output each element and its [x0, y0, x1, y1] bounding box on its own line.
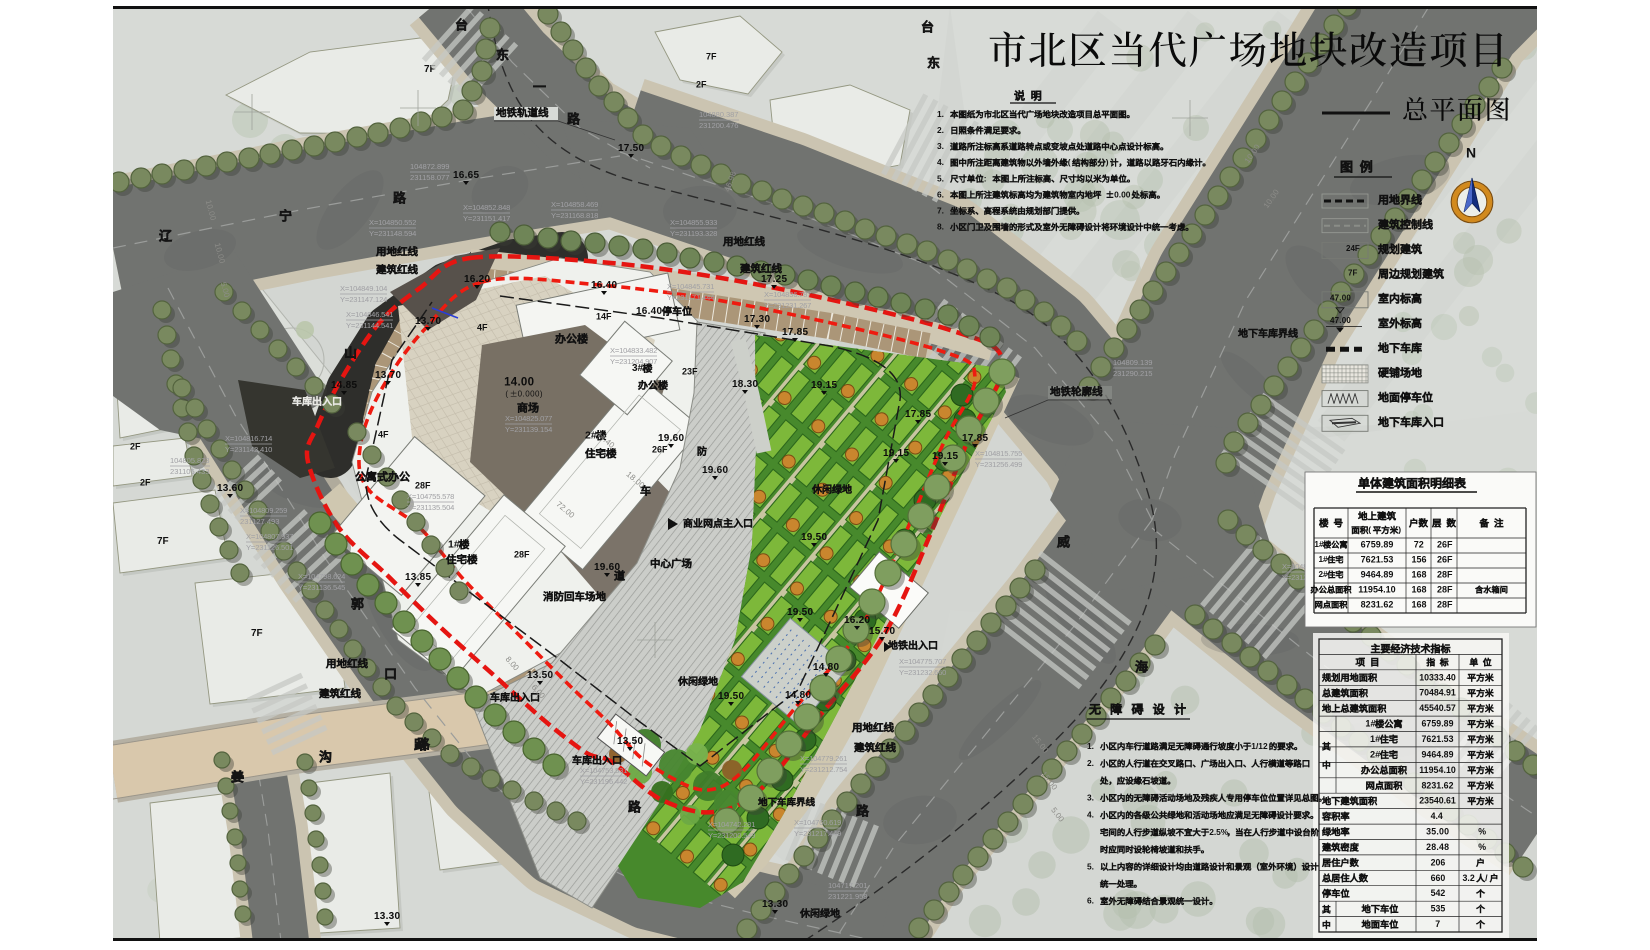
svg-text:X=104858.469: X=104858.469 [551, 200, 598, 209]
svg-text:2#: 2# [1319, 570, 1329, 579]
svg-text:14.85: 14.85 [331, 380, 357, 391]
svg-text:): ) [1398, 525, 1401, 535]
svg-text:3.: 3. [937, 141, 944, 151]
svg-text:2.: 2. [937, 125, 944, 135]
svg-text::: : [984, 173, 987, 183]
svg-text:4F: 4F [378, 429, 389, 439]
svg-text:16.65: 16.65 [453, 170, 479, 181]
svg-text:5.: 5. [937, 173, 944, 183]
svg-text:231158.077: 231158.077 [410, 173, 450, 182]
svg-text:Y=231196.442: Y=231196.442 [580, 777, 627, 786]
svg-text:2F: 2F [140, 477, 151, 487]
svg-text:14.80: 14.80 [813, 662, 839, 673]
svg-text:Y=231171.444: Y=231171.444 [667, 293, 714, 302]
svg-text:19.50: 19.50 [787, 607, 813, 618]
svg-text:Y=231139.154: Y=231139.154 [505, 425, 552, 434]
svg-text:2.: 2. [1087, 758, 1094, 768]
svg-text:9464.89: 9464.89 [1361, 569, 1394, 579]
svg-text:19.50: 19.50 [801, 532, 827, 543]
svg-text:23540.61: 23540.61 [1419, 796, 1456, 806]
svg-text:17.25: 17.25 [761, 274, 787, 285]
svg-text:1/12: 1/12 [1251, 741, 1268, 751]
svg-text:X=104760.619: X=104760.619 [794, 818, 841, 827]
svg-text:2F: 2F [696, 79, 707, 89]
svg-text:X=104815.755: X=104815.755 [975, 449, 1022, 458]
svg-text:7: 7 [1435, 919, 1440, 929]
svg-text:19.15: 19.15 [811, 380, 837, 391]
svg-text:28F: 28F [1437, 569, 1453, 579]
svg-text:Y=231200.549: Y=231200.549 [708, 831, 755, 840]
svg-text:Y=231204.907: Y=231204.907 [610, 357, 657, 366]
svg-text:24F: 24F [1346, 244, 1360, 253]
svg-text:16.20: 16.20 [844, 615, 870, 626]
svg-text:104717.201: 104717.201 [828, 881, 868, 890]
svg-text:35.00: 35.00 [1426, 827, 1449, 837]
svg-text:156: 156 [1412, 554, 1427, 564]
svg-text:X=104836.787: X=104836.787 [764, 290, 811, 299]
svg-text:104805.823: 104805.823 [170, 456, 210, 465]
svg-text:28.48: 28.48 [1426, 842, 1449, 852]
svg-text:X=104755.578: X=104755.578 [407, 492, 454, 501]
svg-text:7F: 7F [251, 628, 263, 639]
svg-text:13.70: 13.70 [415, 316, 441, 327]
svg-text:19.60: 19.60 [594, 562, 620, 573]
svg-text:23F: 23F [682, 366, 698, 376]
svg-text:X=104753.531: X=104753.531 [580, 766, 627, 775]
svg-text:1#: 1# [448, 539, 460, 551]
svg-text:X=104849.104: X=104849.104 [340, 284, 387, 293]
svg-text:Y=231147.124: Y=231147.124 [340, 295, 387, 304]
svg-text:13.30: 13.30 [374, 911, 400, 922]
svg-text:26F: 26F [1437, 554, 1453, 564]
svg-text:28F: 28F [1437, 584, 1453, 594]
svg-text:14F: 14F [596, 311, 612, 321]
svg-text:Y=231231.267: Y=231231.267 [764, 301, 811, 310]
svg-text:15.70: 15.70 [869, 626, 895, 637]
svg-text:104880.387: 104880.387 [699, 110, 739, 119]
svg-text:4.4: 4.4 [1431, 811, 1443, 821]
svg-text:5.: 5. [1087, 861, 1094, 871]
svg-text:26F: 26F [652, 444, 668, 454]
svg-text:104809.139: 104809.139 [1113, 358, 1153, 367]
svg-text:231200.476: 231200.476 [699, 121, 739, 130]
svg-text:Y=231136.545: Y=231136.545 [298, 583, 345, 592]
svg-text:2F: 2F [130, 441, 141, 451]
svg-text:28F: 28F [1437, 599, 1453, 609]
svg-text:660: 660 [1431, 873, 1446, 883]
svg-text:104872.899: 104872.899 [410, 162, 450, 171]
svg-text:206: 206 [1431, 857, 1446, 867]
svg-text:%: % [1478, 842, 1486, 852]
svg-text:X=104807.937: X=104807.937 [246, 532, 293, 541]
svg-text:231127.493: 231127.493 [240, 517, 280, 526]
svg-text:72: 72 [1414, 539, 1424, 549]
svg-text:1#: 1# [1314, 540, 1324, 549]
svg-text:X=104742.281: X=104742.281 [708, 820, 755, 829]
svg-text:X=104779.261: X=104779.261 [800, 754, 847, 763]
svg-text:26F: 26F [1437, 539, 1453, 549]
svg-text:7621.53: 7621.53 [1361, 554, 1394, 564]
svg-text:3.: 3. [1087, 793, 1094, 803]
svg-text:28F: 28F [514, 549, 530, 559]
svg-text:28F: 28F [415, 480, 431, 490]
svg-text:Y=231212.754: Y=231212.754 [800, 765, 847, 774]
svg-text:Y=231151.417: Y=231151.417 [463, 214, 510, 223]
svg-text:19.50: 19.50 [718, 691, 744, 702]
svg-text:3.2: 3.2 [1463, 873, 1475, 883]
svg-text:4F: 4F [477, 322, 488, 332]
svg-text:7.: 7. [937, 206, 944, 216]
svg-text:(: ( [1068, 157, 1071, 167]
svg-text:17.85: 17.85 [962, 433, 988, 444]
svg-text:7F: 7F [157, 536, 169, 547]
svg-text:231105.433: 231105.433 [170, 467, 210, 476]
svg-text:1.: 1. [1087, 741, 1094, 751]
svg-text:6.: 6. [1087, 896, 1094, 906]
svg-text:17.50: 17.50 [618, 143, 644, 154]
svg-text:16.40: 16.40 [591, 280, 617, 291]
svg-text:2#: 2# [1370, 750, 1380, 760]
svg-text:47.00: 47.00 [1330, 293, 1351, 302]
svg-text:X=104809.259: X=104809.259 [240, 506, 287, 515]
svg-text:6.: 6. [937, 189, 944, 199]
svg-text:N: N [1466, 145, 1476, 161]
svg-text:168: 168 [1412, 569, 1427, 579]
svg-text:(: ( [505, 390, 508, 399]
svg-text:X=104845.731: X=104845.731 [667, 282, 714, 291]
svg-text:45540.57: 45540.57 [1419, 703, 1456, 713]
svg-text:13.50: 13.50 [617, 736, 643, 747]
svg-text:13.70: 13.70 [375, 370, 401, 381]
svg-text:%: % [1478, 827, 1486, 837]
svg-text:1#: 1# [1365, 719, 1375, 729]
svg-text:1#: 1# [1319, 555, 1329, 564]
svg-text:535: 535 [1431, 904, 1446, 914]
svg-text:8231.62: 8231.62 [1361, 599, 1394, 609]
svg-text:X=104825.077: X=104825.077 [505, 414, 552, 423]
svg-text:168: 168 [1412, 599, 1427, 609]
svg-text:10333.40: 10333.40 [1419, 672, 1456, 682]
svg-text:1.: 1. [937, 109, 944, 119]
svg-text:19.15: 19.15 [932, 451, 958, 462]
svg-text:X=104833.482: X=104833.482 [610, 346, 657, 355]
svg-text:11954.10: 11954.10 [1419, 765, 1456, 775]
svg-text:7F: 7F [706, 51, 717, 61]
svg-text:2.5%: 2.5% [1209, 827, 1229, 837]
svg-text:Y=231168.818: Y=231168.818 [551, 211, 598, 220]
svg-text:17.85: 17.85 [782, 327, 808, 338]
svg-text:Y=231193.328: Y=231193.328 [670, 229, 717, 238]
svg-text:(: ( [1368, 525, 1371, 535]
svg-text:19.60: 19.60 [702, 465, 728, 476]
svg-text:6759.89: 6759.89 [1422, 719, 1454, 729]
svg-text:X=104846.541: X=104846.541 [346, 310, 393, 319]
svg-text:Y=231217.449: Y=231217.449 [794, 829, 841, 838]
svg-text:Y=231148.594: Y=231148.594 [369, 229, 416, 238]
svg-text:X=104816.714: X=104816.714 [225, 434, 272, 443]
svg-text:17.30: 17.30 [744, 314, 770, 325]
svg-text:8231.62: 8231.62 [1422, 780, 1454, 790]
svg-text:X=104775.707: X=104775.707 [899, 657, 946, 666]
svg-text:X=104850.552: X=104850.552 [369, 218, 416, 227]
svg-text:7621.53: 7621.53 [1422, 734, 1454, 744]
svg-text:Y=231126.501: Y=231126.501 [246, 543, 293, 552]
svg-text:13.60: 13.60 [217, 483, 243, 494]
svg-text:13.85: 13.85 [405, 572, 431, 583]
svg-text:0.00: 0.00 [1114, 189, 1131, 199]
svg-text:13.30: 13.30 [762, 899, 788, 910]
svg-text:X=104855.933: X=104855.933 [670, 218, 717, 227]
svg-text:X=104852.848: X=104852.848 [463, 203, 510, 212]
svg-text:7F: 7F [1348, 269, 1357, 278]
svg-text:168: 168 [1412, 584, 1427, 594]
svg-text:19.15: 19.15 [883, 448, 909, 459]
svg-text:Y=231135.504: Y=231135.504 [407, 503, 454, 512]
svg-text:231221.958: 231221.958 [828, 892, 868, 901]
svg-text:17.85: 17.85 [905, 409, 931, 420]
svg-text:9464.89: 9464.89 [1422, 749, 1454, 759]
svg-text:231290.215: 231290.215 [1113, 369, 1153, 378]
svg-text:1#: 1# [1370, 734, 1380, 744]
svg-text:19.60: 19.60 [658, 433, 684, 444]
svg-text:13.50: 13.50 [527, 670, 553, 681]
svg-text:18.30: 18.30 [732, 379, 758, 390]
svg-text:4.: 4. [1087, 810, 1094, 820]
svg-text:16.20: 16.20 [464, 274, 490, 285]
svg-text:Y=231256.499: Y=231256.499 [975, 460, 1022, 469]
svg-text:70484.91: 70484.91 [1419, 688, 1456, 698]
svg-text:14.80: 14.80 [785, 690, 811, 701]
svg-text:4.: 4. [937, 157, 944, 167]
svg-text:11954.10: 11954.10 [1358, 584, 1395, 594]
svg-text:47.00: 47.00 [1330, 316, 1351, 325]
svg-text:14.00: 14.00 [504, 376, 534, 388]
svg-text:8.: 8. [937, 222, 944, 232]
svg-text:0.000): 0.000) [518, 390, 543, 399]
svg-text:6759.89: 6759.89 [1361, 539, 1394, 549]
svg-text:X=104798.624: X=104798.624 [298, 572, 345, 581]
svg-text:Y=231144.541: Y=231144.541 [346, 321, 393, 330]
svg-text:542: 542 [1431, 888, 1446, 898]
svg-text:): ) [1106, 157, 1109, 167]
svg-text:16.40: 16.40 [636, 306, 662, 317]
svg-text:Y=231142.410: Y=231142.410 [225, 445, 272, 454]
svg-text:Y=231232.660: Y=231232.660 [899, 668, 946, 677]
